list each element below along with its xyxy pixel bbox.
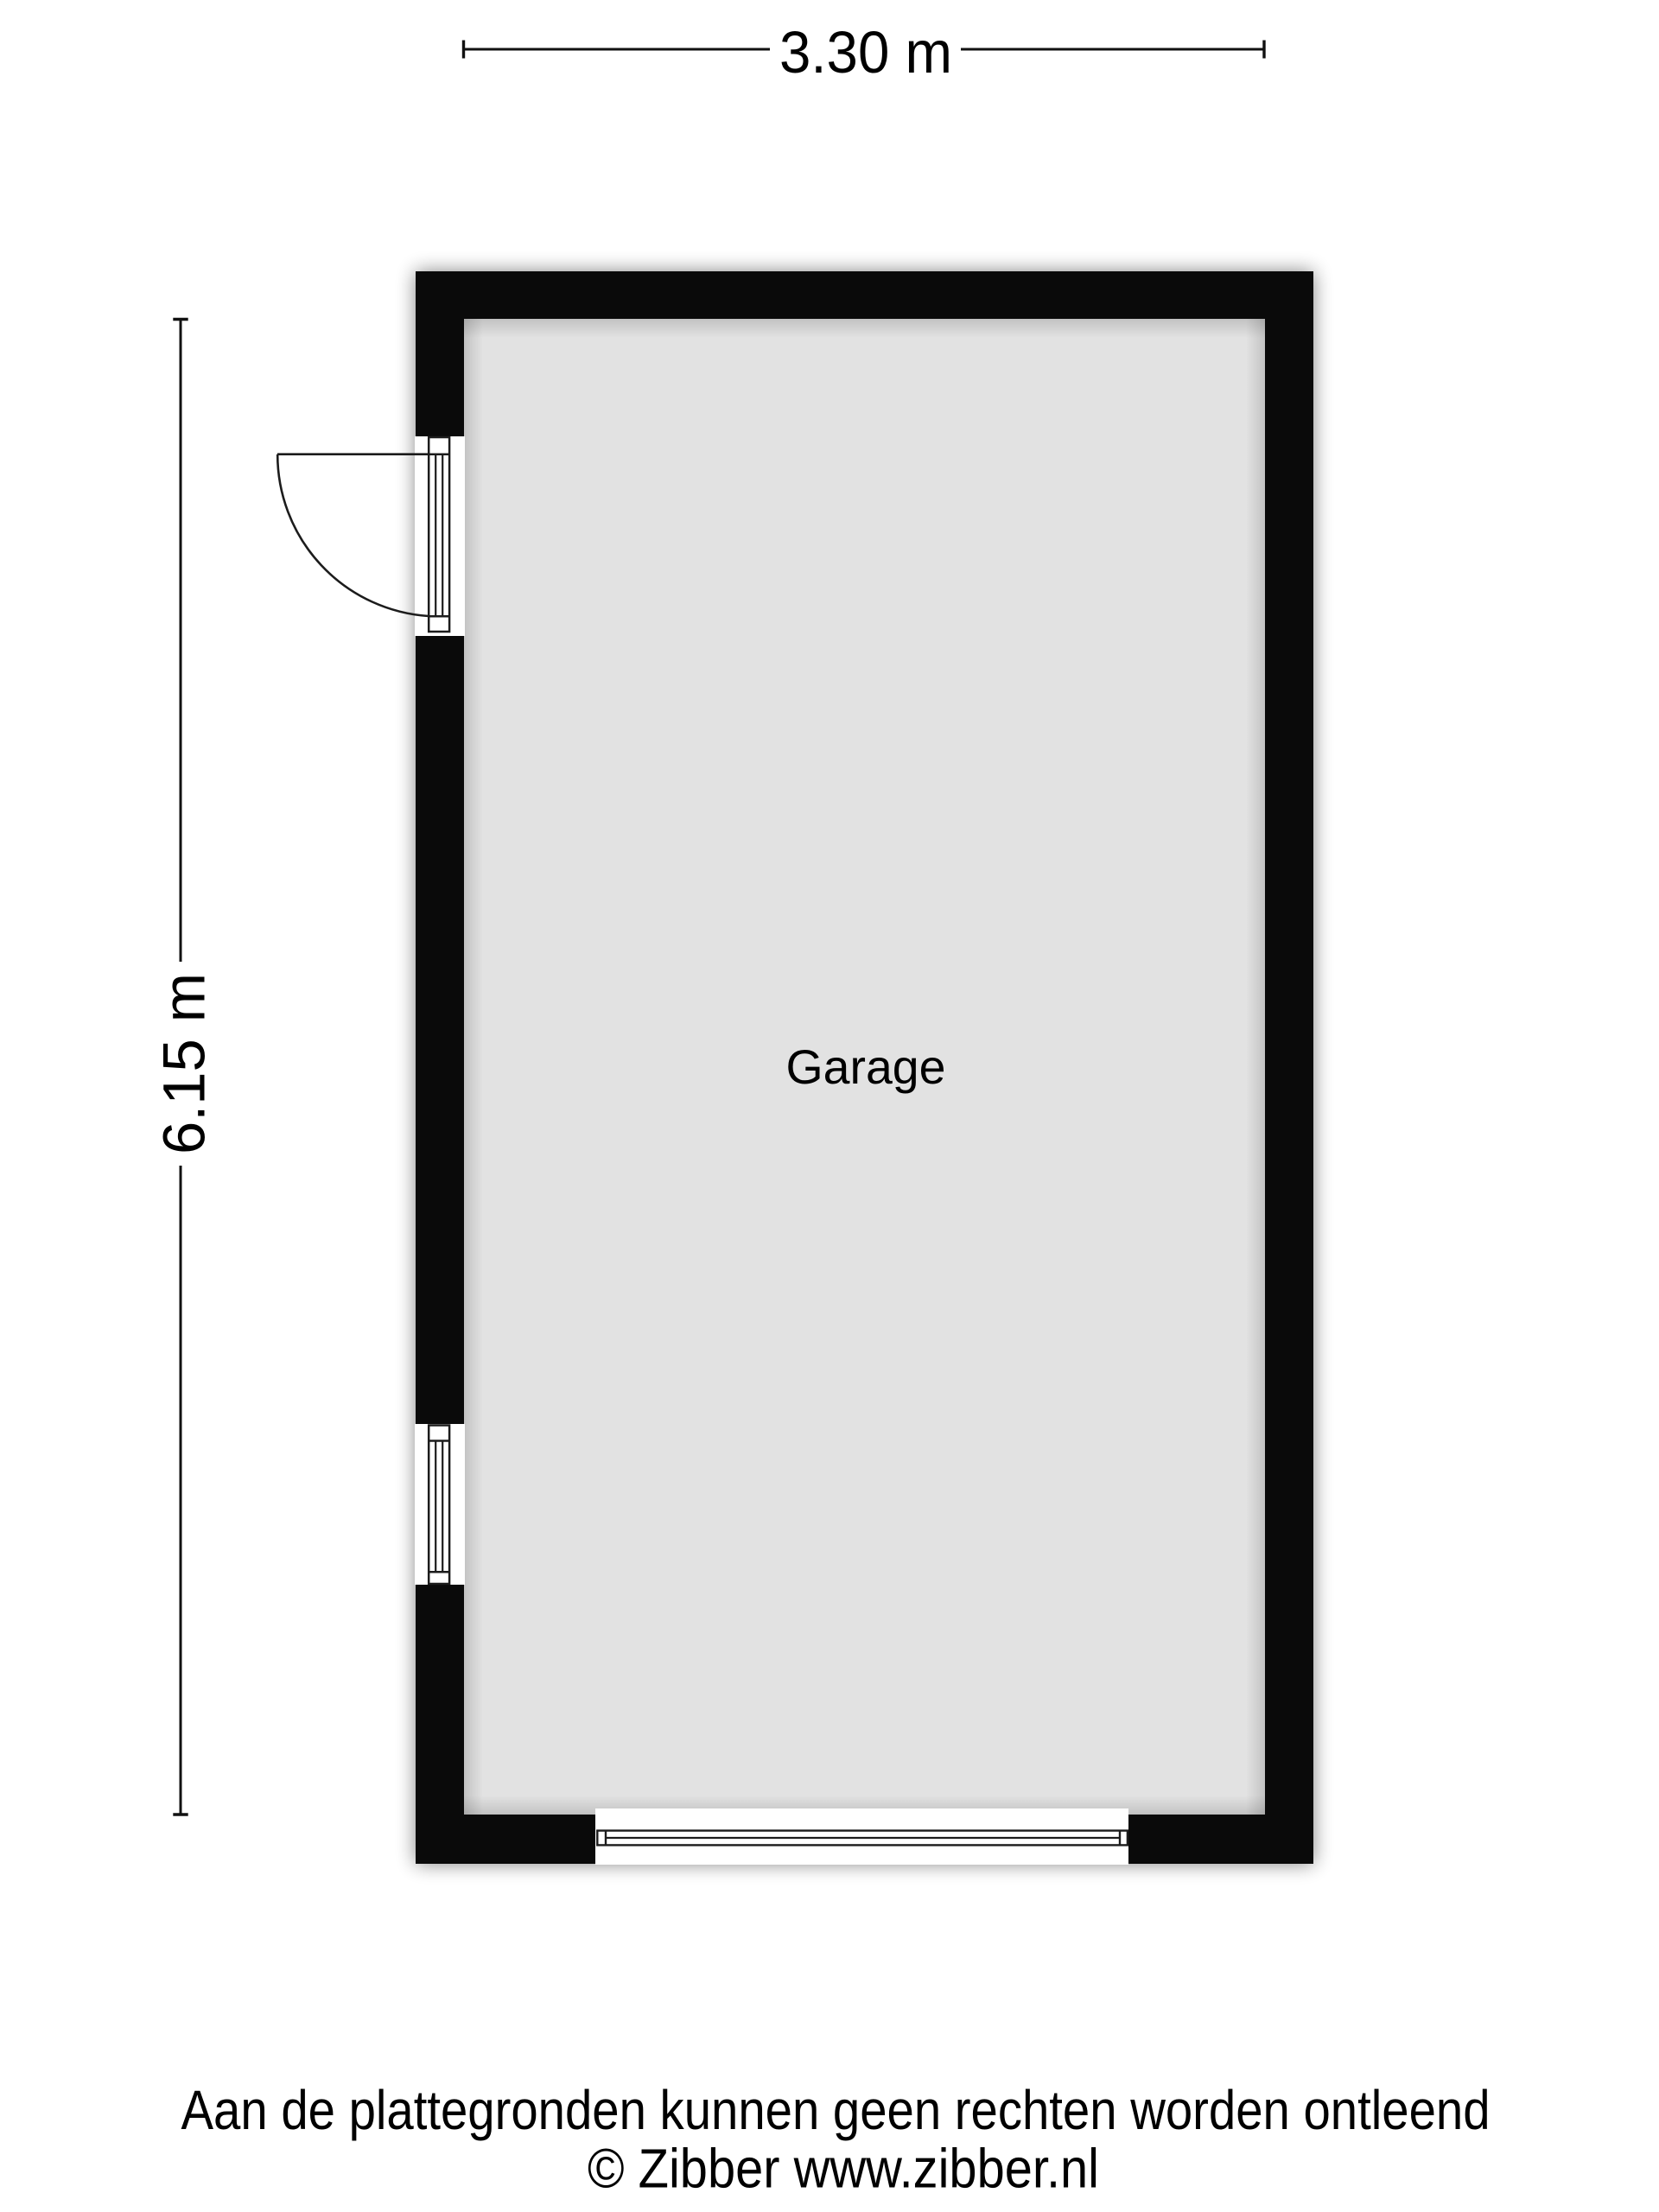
svg-text:© Zibber www.zibber.nl: © Zibber www.zibber.nl (588, 2138, 1099, 2200)
svg-text:3.30 m: 3.30 m (779, 19, 952, 86)
svg-text:6.15 m: 6.15 m (151, 973, 218, 1154)
svg-text:Garage: Garage (786, 1039, 946, 1094)
svg-text:Aan de plattegronden kunnen ge: Aan de plattegronden kunnen geen rechten… (181, 2079, 1491, 2141)
